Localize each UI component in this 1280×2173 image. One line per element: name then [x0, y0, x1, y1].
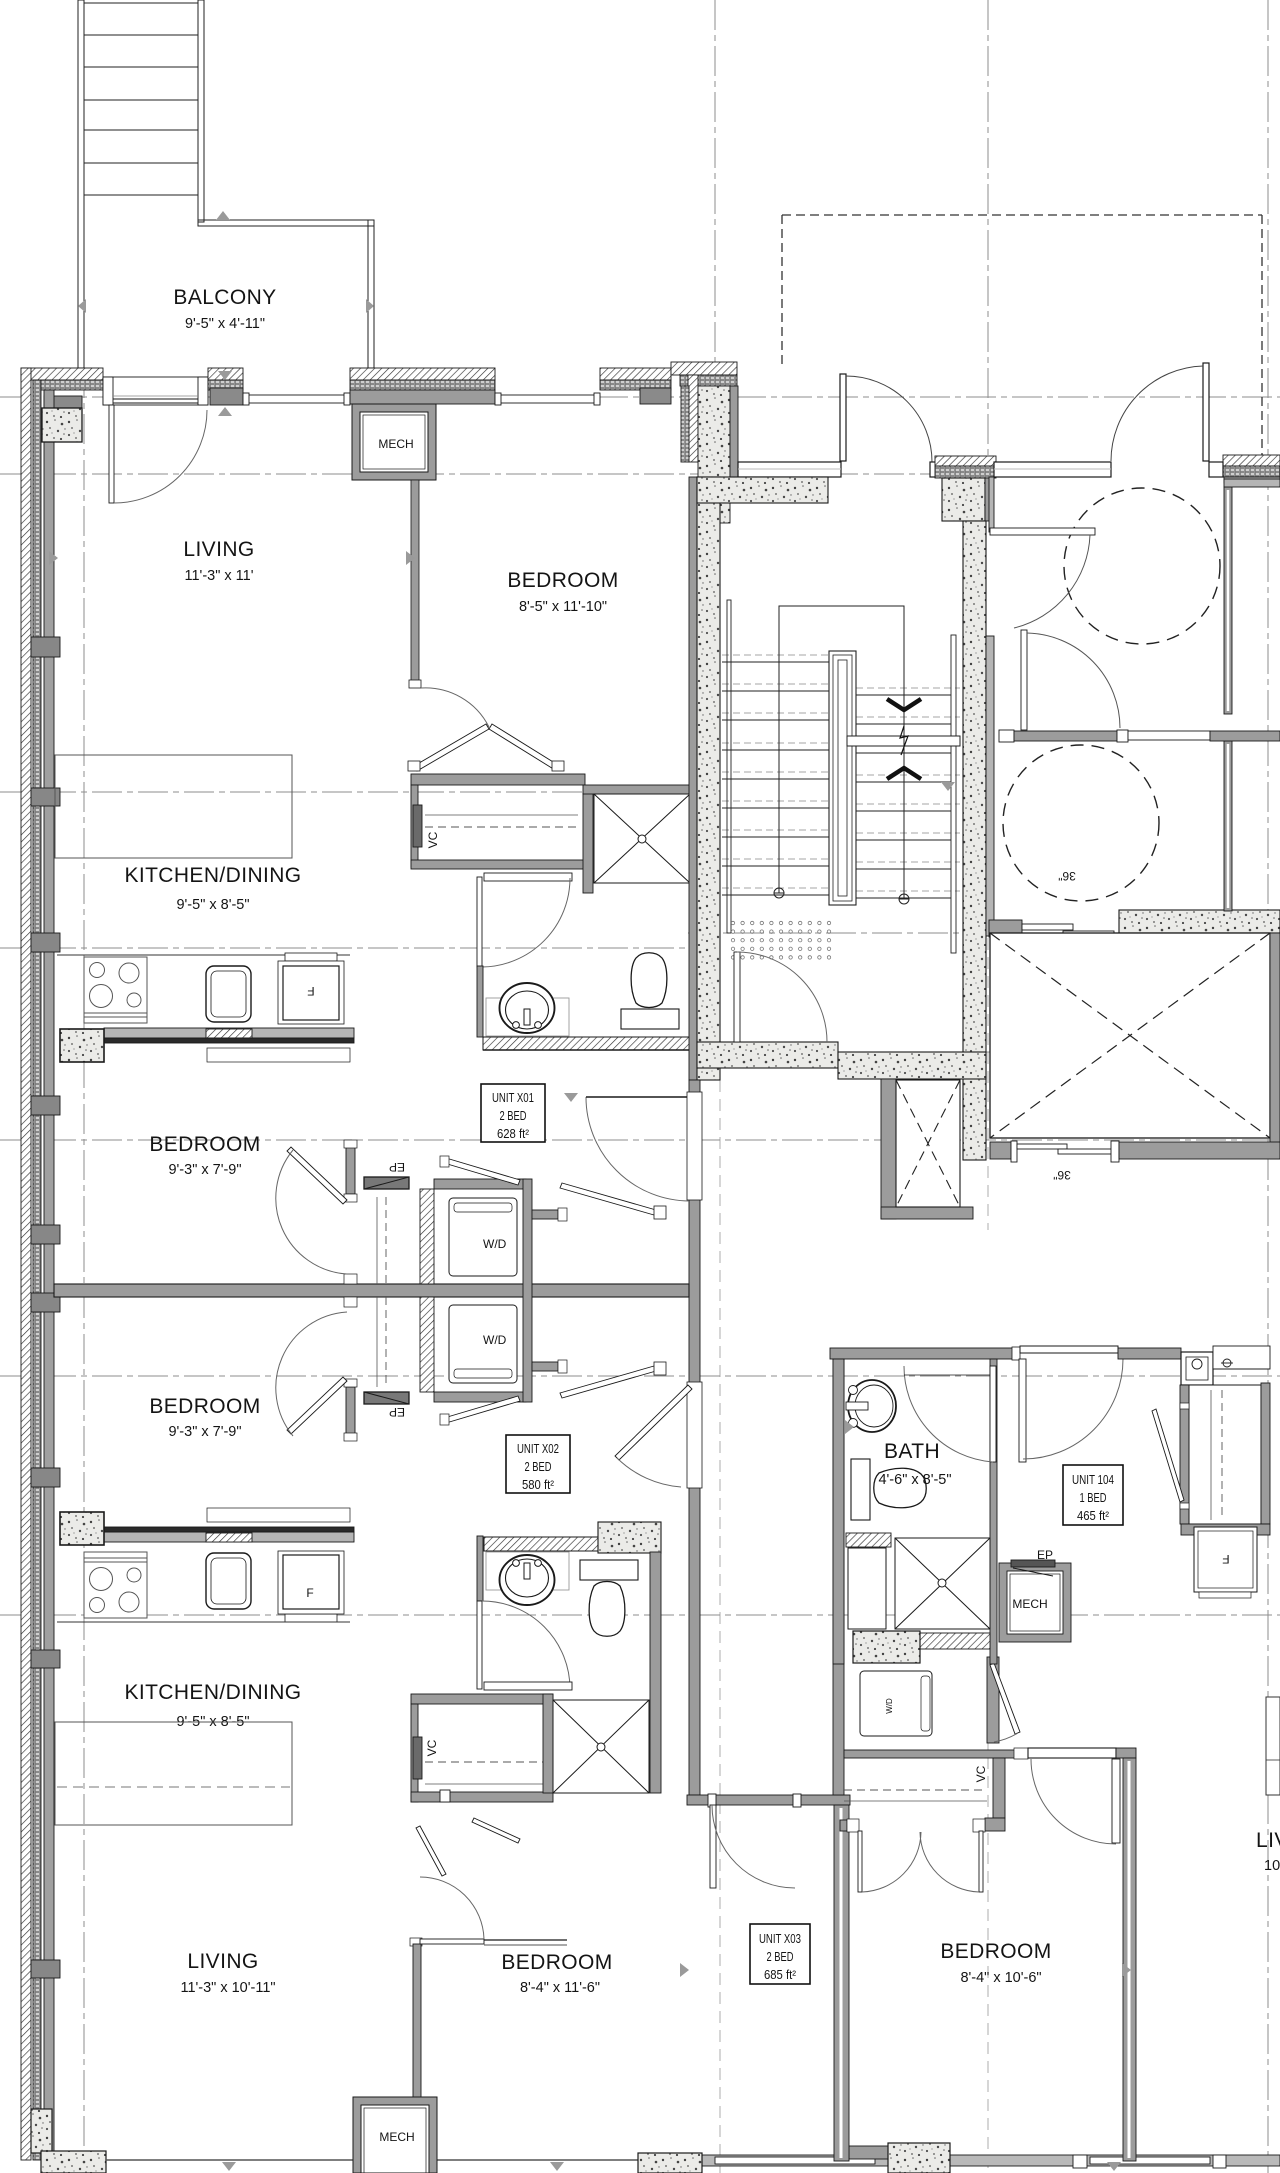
svg-text:BEDROOM: BEDROOM	[507, 569, 618, 592]
svg-text:10'-: 10'-	[1264, 1858, 1280, 1874]
svg-text:9'-5" x 4'-11": 9'-5" x 4'-11"	[185, 316, 265, 332]
svg-text:UNIT X03: UNIT X03	[759, 1932, 801, 1946]
svg-text:VC: VC	[974, 1765, 988, 1782]
svg-text:UNIT X02: UNIT X02	[517, 1442, 559, 1456]
svg-text:580 ft²: 580 ft²	[522, 1478, 554, 1492]
svg-text:BEDROOM: BEDROOM	[149, 1133, 260, 1156]
svg-text:LIVING: LIVING	[1256, 1829, 1280, 1852]
svg-text:EP: EP	[389, 1405, 405, 1419]
svg-text:BEDROOM: BEDROOM	[940, 1940, 1051, 1963]
svg-text:LIVING: LIVING	[187, 1950, 258, 1973]
svg-text:9'-5" x 8'-5": 9'-5" x 8'-5"	[176, 897, 249, 913]
svg-text:MECH: MECH	[378, 437, 413, 451]
svg-text:BEDROOM: BEDROOM	[149, 1395, 260, 1418]
svg-text:W/D: W/D	[885, 1698, 894, 1714]
svg-text:4'-6" x 8'-5": 4'-6" x 8'-5"	[878, 1472, 951, 1488]
svg-text:685 ft²: 685 ft²	[764, 1968, 796, 1982]
svg-text:BALCONY: BALCONY	[173, 286, 276, 309]
svg-text:VC: VC	[425, 1739, 439, 1756]
svg-text:BEDROOM: BEDROOM	[501, 1951, 612, 1974]
svg-text:1 BED: 1 BED	[1080, 1491, 1107, 1505]
svg-text:36": 36"	[1058, 869, 1076, 883]
svg-text:MECH: MECH	[379, 2130, 414, 2144]
svg-text:W/D: W/D	[483, 1237, 507, 1251]
svg-text:11'-3" x 11': 11'-3" x 11'	[185, 568, 254, 584]
svg-text:EP: EP	[1037, 1548, 1053, 1562]
svg-text:F: F	[1222, 1552, 1229, 1566]
svg-text:W/D: W/D	[483, 1333, 507, 1347]
svg-text:11'-3" x 10'-11": 11'-3" x 10'-11"	[180, 1980, 275, 1996]
svg-text:8'-4" x 11'-6": 8'-4" x 11'-6"	[520, 1980, 600, 1996]
svg-text:F: F	[307, 984, 314, 998]
svg-text:628 ft²: 628 ft²	[497, 1127, 529, 1141]
svg-text:8'-5" x 11'-10": 8'-5" x 11'-10"	[519, 599, 607, 615]
svg-text:MECH: MECH	[1012, 1597, 1047, 1611]
svg-text:EP: EP	[389, 1160, 405, 1174]
svg-text:UNIT 104: UNIT 104	[1072, 1473, 1114, 1487]
svg-text:36": 36"	[1053, 1168, 1071, 1182]
svg-text:2 BED: 2 BED	[767, 1950, 794, 1964]
svg-text:KITCHEN/DINING: KITCHEN/DINING	[124, 864, 301, 887]
svg-text:VC: VC	[426, 831, 440, 848]
svg-text:2 BED: 2 BED	[525, 1460, 552, 1474]
svg-text:KITCHEN/DINING: KITCHEN/DINING	[124, 1681, 301, 1704]
svg-text:UNIT X01: UNIT X01	[492, 1091, 534, 1105]
svg-text:8'-4" x 10'-6": 8'-4" x 10'-6"	[960, 1970, 1041, 1986]
svg-text:9'-3" x 7'-9": 9'-3" x 7'-9"	[168, 1424, 241, 1440]
svg-text:LIVING: LIVING	[183, 538, 254, 561]
svg-text:F: F	[306, 1586, 313, 1600]
svg-text:465 ft²: 465 ft²	[1077, 1509, 1109, 1523]
svg-text:BATH: BATH	[884, 1440, 940, 1463]
svg-text:2 BED: 2 BED	[500, 1109, 527, 1123]
svg-text:9'-3" x 7'-9": 9'-3" x 7'-9"	[168, 1162, 241, 1178]
